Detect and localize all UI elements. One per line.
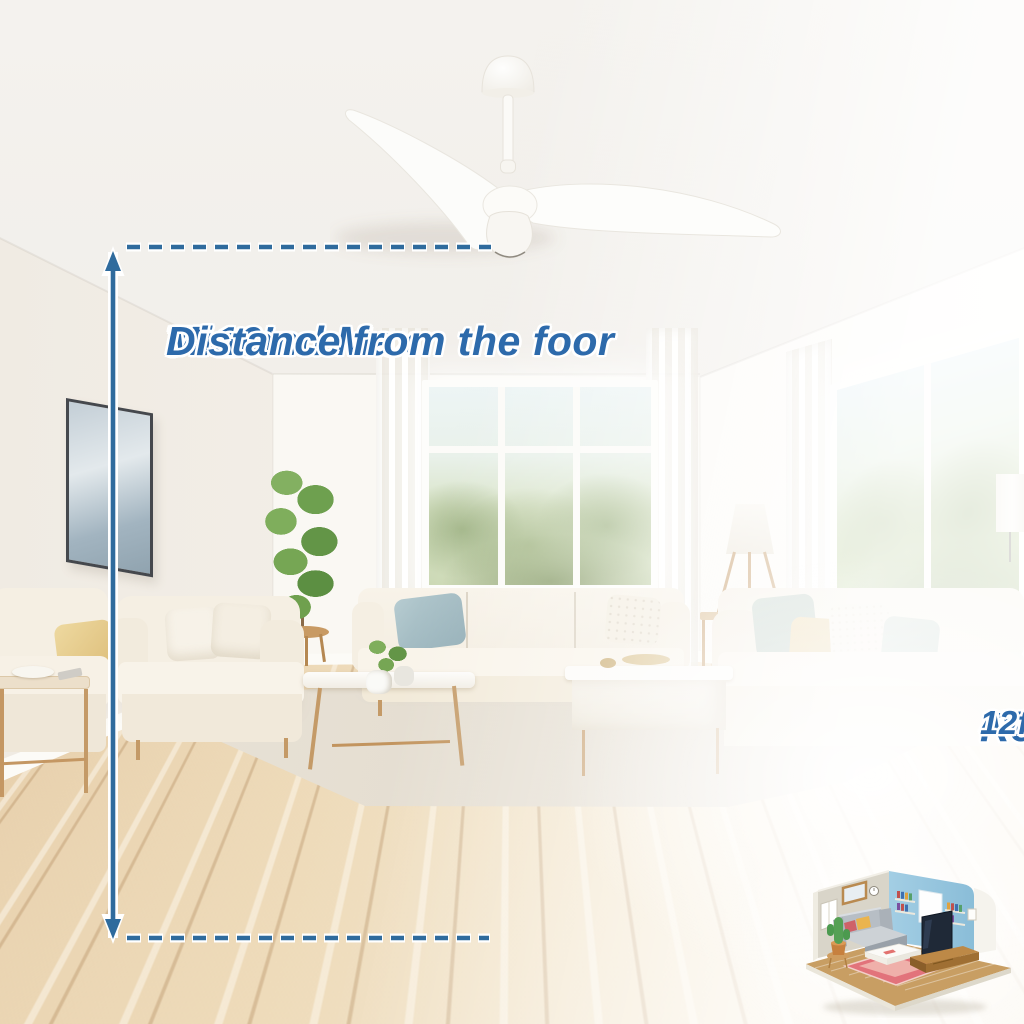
side-table-left-top: [0, 676, 90, 689]
iso-white-partition: [974, 888, 996, 954]
pillow-patterned: [604, 594, 662, 647]
window-center: [422, 380, 658, 592]
plant-stand-leg: [305, 636, 308, 666]
sofa-left-front: [122, 694, 302, 742]
sofa-far-left-front: [0, 694, 106, 752]
fan-downrod: [503, 95, 513, 167]
side-table-tray: [12, 666, 54, 678]
coffee-table-right-body: [572, 680, 726, 730]
window-transom: [429, 446, 651, 453]
table-bowl: [600, 658, 616, 668]
distance-line3: Distance from the foor: [166, 318, 614, 365]
room-size-dimensions: 12ft×14ft: [980, 704, 1024, 741]
sofa-leg: [378, 700, 382, 716]
iso-small-frame: [968, 909, 976, 920]
table-tray: [622, 654, 670, 665]
fan-blade-front: [487, 212, 533, 259]
fan-coupler: [501, 160, 516, 173]
window-mullion: [498, 387, 505, 585]
ceiling-junction-back: [273, 373, 700, 375]
room-illustration: [793, 858, 1024, 1018]
side-table-leg: [84, 689, 88, 793]
plant-pot-grey: [394, 666, 414, 686]
side-table-leg: [0, 689, 4, 797]
right-lamp-shade: [996, 474, 1024, 532]
wall-art-frame: [66, 398, 153, 577]
sofa-seam: [466, 592, 468, 648]
table-leg: [582, 730, 585, 776]
ceiling-fan-infographic: 7'-10' Min and Max Distance from the foo…: [0, 0, 1024, 1024]
sofa-leg: [284, 738, 288, 758]
iso-wall-edge: [813, 891, 818, 961]
sofa-leg: [136, 740, 140, 760]
coffee-table-right-top: [565, 666, 733, 680]
fan-blade-right: [524, 184, 780, 237]
ceiling-fan: [330, 40, 790, 270]
sofa-right-front: [724, 686, 1024, 746]
sofa-seam: [574, 592, 576, 648]
table-leg: [716, 728, 719, 774]
plant-pot-white: [366, 670, 392, 694]
right-lamp-rod: [1009, 532, 1011, 562]
window-mullion: [573, 387, 580, 585]
